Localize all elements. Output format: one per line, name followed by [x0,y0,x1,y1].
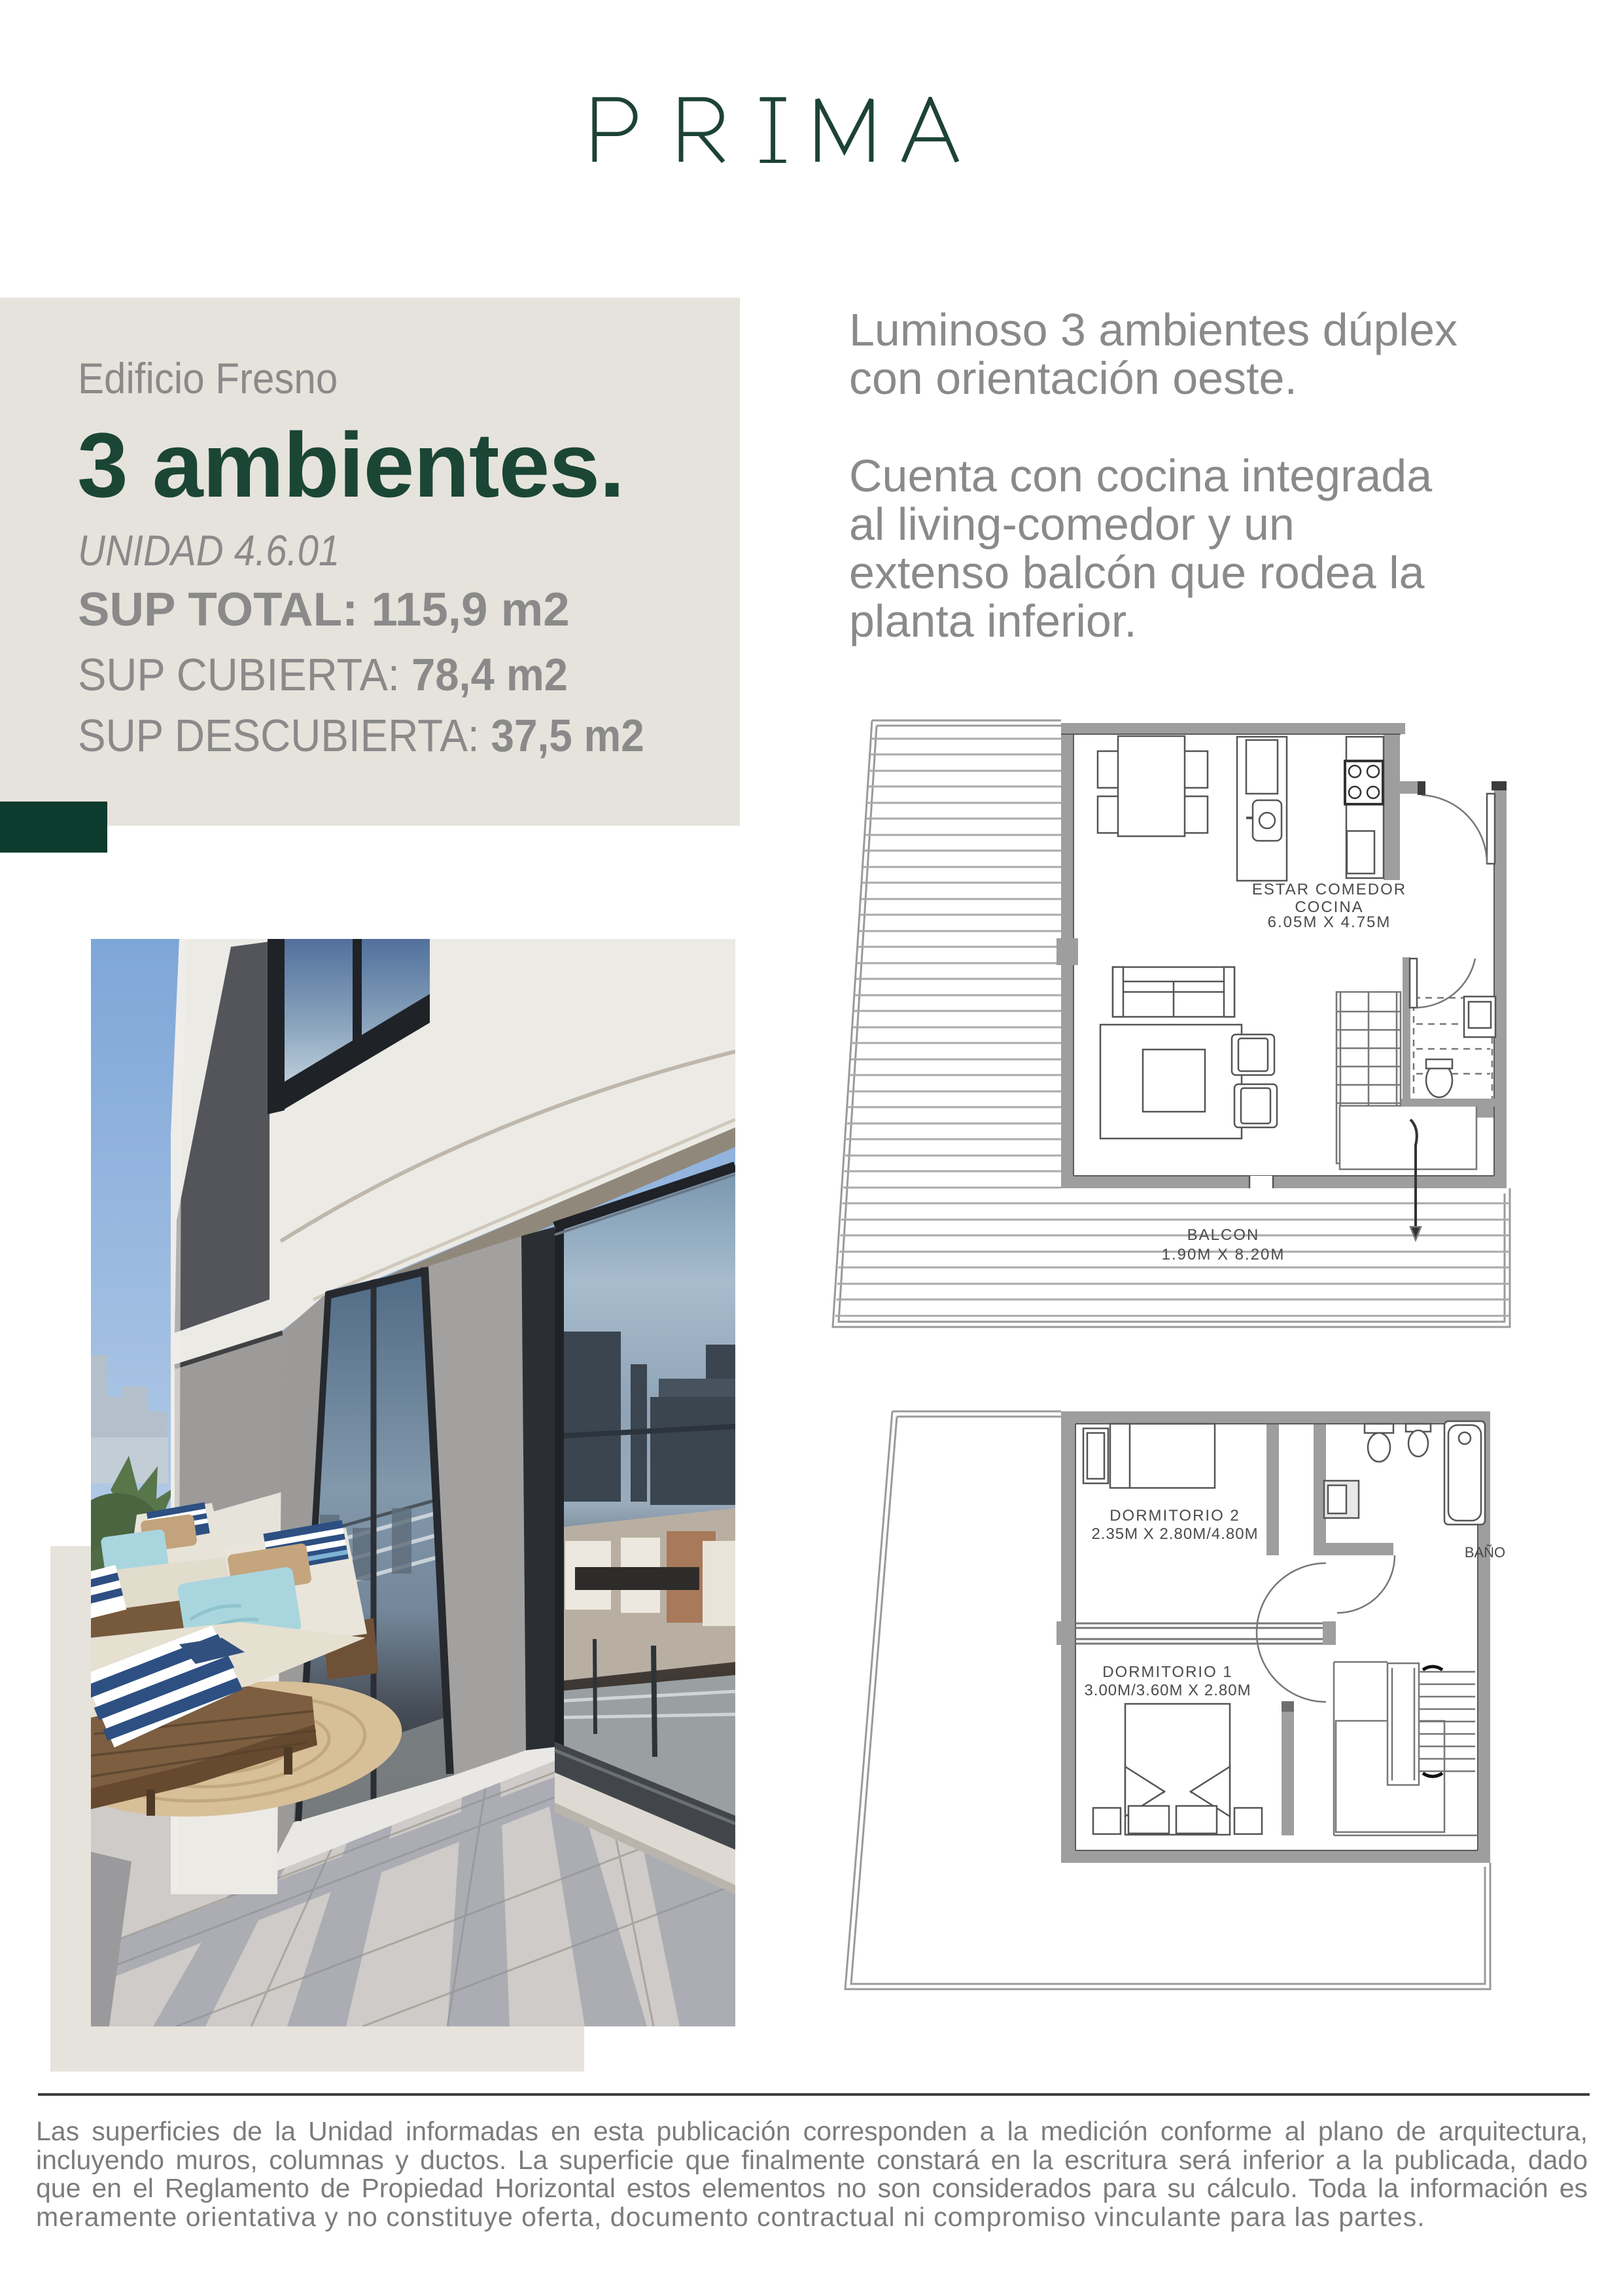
svg-text:BAÑO: BAÑO [1465,1544,1505,1561]
svg-text:BALCON: BALCON [1187,1226,1260,1244]
svg-text:2.35M X 2.80M/4.80M: 2.35M X 2.80M/4.80M [1091,1525,1258,1543]
svg-text:DORMITORIO 2: DORMITORIO 2 [1109,1507,1240,1525]
svg-text:1.90M X 8.20M: 1.90M X 8.20M [1162,1246,1285,1263]
svg-text:ESTAR COMEDOR: ESTAR COMEDOR [1252,881,1406,898]
svg-text:DORMITORIO 1: DORMITORIO 1 [1102,1663,1233,1681]
svg-text:6.05M X 4.75M: 6.05M X 4.75M [1268,913,1391,931]
svg-text:3.00M/3.60M X 2.80M: 3.00M/3.60M X 2.80M [1084,1682,1251,1699]
